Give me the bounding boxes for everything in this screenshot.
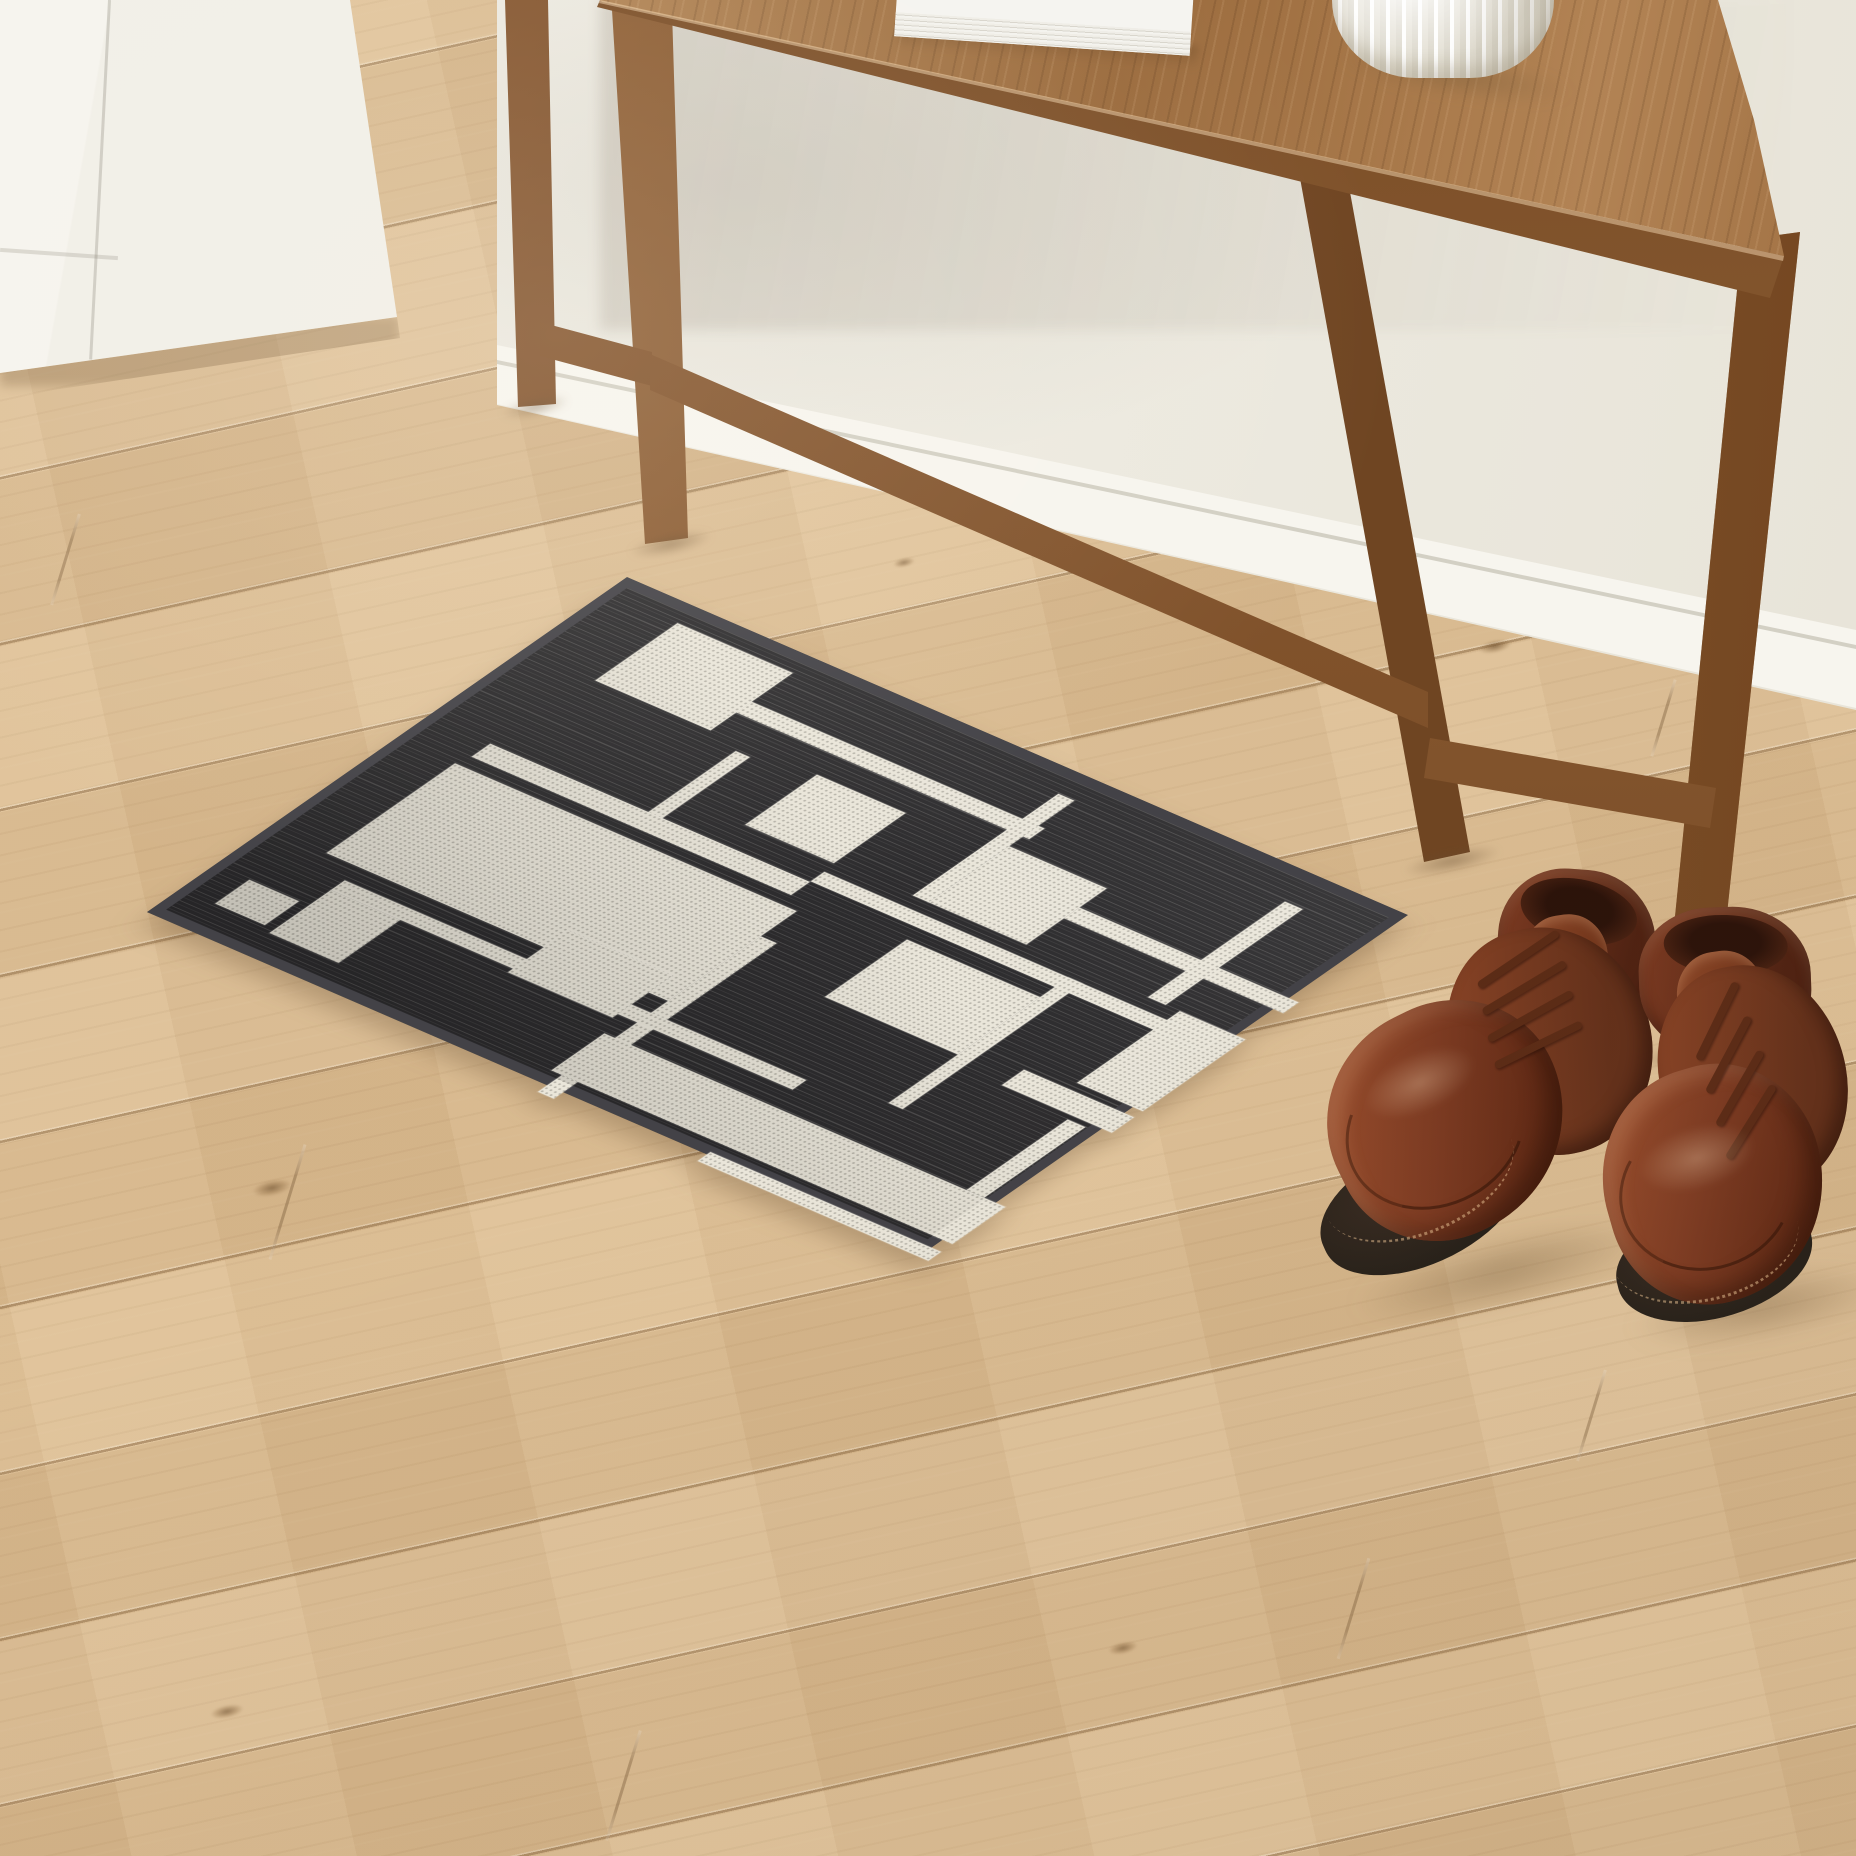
boot-right [1578,900,1856,1350]
entryway-scene [0,0,1856,1856]
